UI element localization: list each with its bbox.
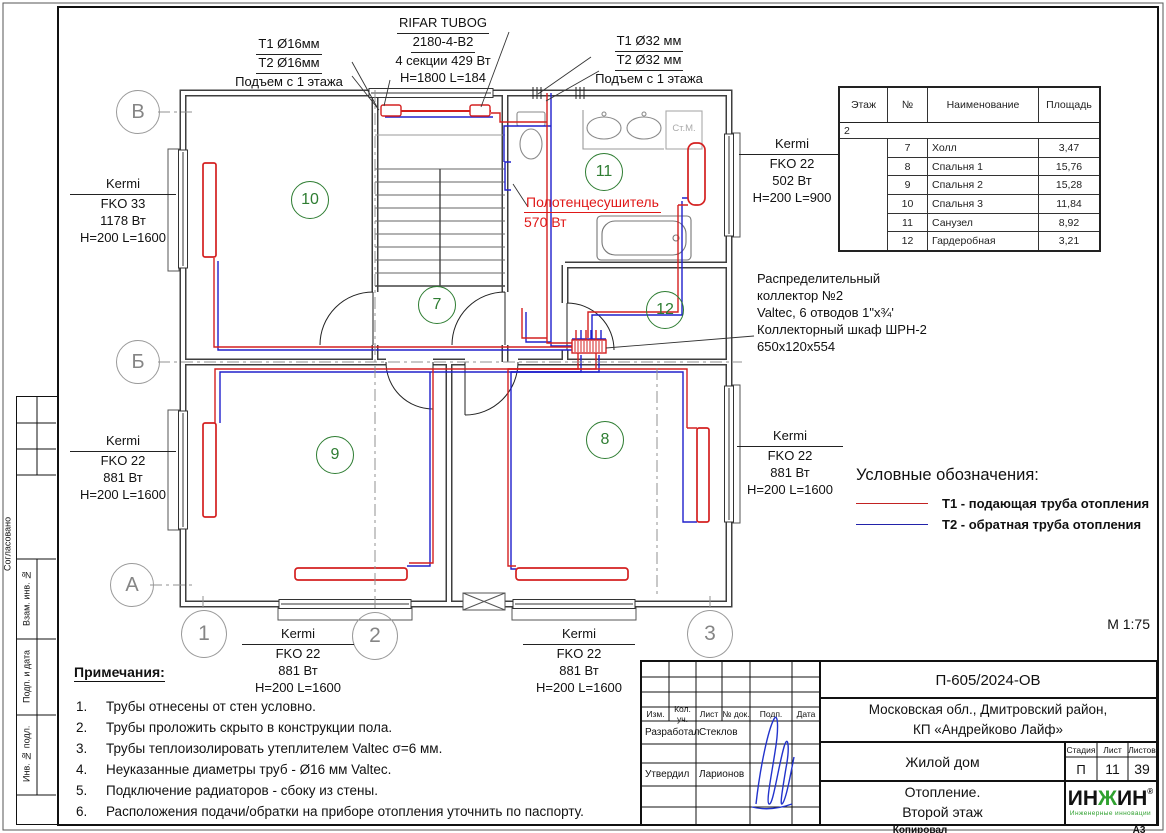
radiator-model: FKO 22 — [70, 453, 176, 470]
collector-line1: Распределительный — [757, 271, 952, 288]
table-row: 8Спальня 115,76 — [888, 158, 1099, 177]
stamp-podp: Подп. и дата — [17, 639, 36, 713]
axis-bubble-a: А — [110, 563, 154, 607]
note-item: 5.Подключение радиаторов - сбоку из стен… — [76, 780, 642, 801]
project-address: Московская обл., Дмитровский район, КП «… — [820, 698, 1156, 742]
radiator-power: 881 Вт — [737, 465, 843, 482]
staircase — [375, 135, 505, 286]
company-logo: ИНЖИН® Инженерные инновации — [1065, 781, 1156, 824]
axis-label: 2 — [369, 624, 381, 648]
radiator-brand: Kermi — [737, 428, 843, 447]
axis-label: 3 — [704, 622, 716, 646]
rifar-model: 2180-4-В2 — [411, 34, 476, 53]
legend-label: Т2 - обратная труба отопления — [942, 517, 1141, 532]
legend-line-blue — [856, 524, 928, 525]
collector — [572, 340, 606, 353]
radiator-power: 1178 Вт — [70, 213, 176, 230]
axis-bubble-b: Б — [116, 340, 160, 384]
rifar-size: H=1800 L=184 — [366, 70, 520, 87]
callout-radiator-room9-left: Kermi FKO 22 881 Вт H=200 L=1600 — [70, 433, 176, 504]
title-block: П-605/2024-ОВ Московская обл., Дмитровск… — [640, 660, 1158, 826]
stamp-inv: Инв. № подл. — [17, 715, 36, 793]
axis-bubble-2: 2 — [352, 612, 398, 660]
room-number-label: 8 — [601, 431, 610, 449]
axis-label: А — [125, 574, 138, 597]
drawing-title: Отопление. Второй этаж — [820, 781, 1065, 824]
riser16-t1: Т1 Ø16мм — [256, 36, 321, 55]
callout-radiator-room8-bottom: Kermi FKO 22 881 Вт H=200 L=1600 — [523, 626, 635, 697]
axis-bubble-1: 1 — [181, 610, 227, 658]
note-item: 1.Трубы отнесены от стен условно. — [76, 696, 642, 717]
approved-label: Утвердил — [642, 763, 696, 786]
riser16-t2: Т2 Ø16мм — [256, 55, 321, 74]
scale-label: М 1:75 — [1058, 616, 1150, 632]
logo-subtitle: Инженерные инновации — [1070, 810, 1151, 817]
col-kol: Кол. уч. — [669, 707, 696, 721]
legend-item-supply: Т1 - подающая труба отопления — [856, 496, 1149, 511]
copied-label: Копировал — [860, 825, 980, 833]
radiator-size: H=200 L=900 — [739, 190, 845, 207]
radiator-size: H=200 L=1600 — [242, 680, 354, 697]
legend-line-red — [856, 503, 928, 504]
room-number-12: 12 — [646, 291, 684, 329]
room-number-label: 11 — [596, 163, 613, 181]
floor-spacer-cell — [840, 139, 888, 250]
radiator-power: 881 Вт — [523, 663, 635, 680]
room-number-7: 7 — [418, 286, 456, 324]
room-number-label: 10 — [301, 191, 319, 209]
developed-label: Разработал — [642, 721, 696, 744]
collector-line4: Коллекторный шкаф ШРН-2 — [757, 322, 952, 339]
table-row: 10Спальня 311,84 — [888, 195, 1099, 214]
collector-line5: 650х120х554 — [757, 339, 952, 356]
callout-radiator-room9-bottom: Kermi FKO 22 881 Вт H=200 L=1600 — [242, 626, 354, 697]
chimney — [463, 593, 505, 610]
towel-rail-label: Полотенцесушитель — [524, 193, 661, 213]
callout-radiator-bathroom: Kermi FKO 22 502 Вт H=200 L=900 — [739, 136, 845, 207]
rifar-brand: RIFAR TUBOG — [397, 15, 489, 34]
legend-item-return: Т2 - обратная труба отопления — [856, 517, 1141, 532]
table-row: 12Гардеробная3,21 — [888, 232, 1099, 250]
table-header-row: Этаж № Наименование Площадь — [840, 88, 1099, 123]
rifar-sections: 4 секции 429 Вт — [366, 53, 520, 70]
drawing-sheet: В Б А 1 2 3 10 7 11 12 9 8 Ст.М. Т1 Ø16м… — [0, 0, 1166, 833]
radiator-model: FKO 22 — [523, 646, 635, 663]
callout-riser-32: Т1 Ø32 мм Т2 Ø32 мм Подъем с 1 этажа — [583, 33, 715, 88]
radiator-power: 502 Вт — [739, 173, 845, 190]
stamp-vzam: Взам. инв. № — [17, 559, 36, 637]
col-header-floor: Этаж — [840, 88, 888, 122]
callout-riser-16: Т1 Ø16мм Т2 Ø16мм Подъем с 1 этажа — [215, 36, 363, 91]
riser32-t2: Т2 Ø32 мм — [615, 52, 684, 71]
radiator-brand: Kermi — [70, 433, 176, 452]
table-row: 7Холл3,47 — [888, 139, 1099, 158]
col-izm: Изм. — [642, 707, 669, 721]
stamp-soglasovano: Согласовано — [1, 498, 14, 590]
radiator-model: FKO 22 — [737, 448, 843, 465]
radiator-size: H=200 L=1600 — [70, 487, 176, 504]
note-item: 4.Неуказанные диаметры труб - Ø16 мм Val… — [76, 759, 642, 780]
sheets-value: 39 — [1128, 757, 1156, 781]
table-row: 9Спальня 215,28 — [888, 176, 1099, 195]
notes-title: Примечания: — [74, 664, 165, 682]
riser16-note: Подъем с 1 этажа — [215, 74, 363, 91]
axis-bubble-v: В — [116, 90, 160, 134]
room-number-8: 8 — [586, 421, 624, 459]
doc-number: П-605/2024-ОВ — [820, 662, 1156, 698]
callout-rifar: RIFAR TUBOG 2180-4-В2 4 секции 429 Вт H=… — [366, 15, 520, 87]
object-name: Жилой дом — [820, 742, 1065, 781]
room-number-11: 11 — [585, 153, 623, 191]
radiator-rifar-stairs — [381, 105, 491, 116]
radiators — [203, 105, 709, 580]
axis-label: Б — [131, 351, 144, 374]
radiator-room8-bottom — [516, 568, 628, 580]
room-number-label: 12 — [656, 301, 674, 319]
sinks — [587, 112, 661, 139]
axis-label: В — [131, 101, 144, 124]
legend-label: Т1 - подающая труба отопления — [942, 496, 1149, 511]
axis-label: 1 — [198, 622, 210, 646]
stage-value: П — [1065, 757, 1097, 781]
callout-radiator-room8-right: Kermi FKO 22 881 Вт H=200 L=1600 — [737, 428, 843, 499]
radiator-model: FKO 22 — [242, 646, 354, 663]
room-number-label: 9 — [331, 446, 340, 464]
collector-line3: Valtec, 6 отводов 1"х¾' — [757, 305, 952, 322]
notes-list: 1.Трубы отнесены от стен условно. 2.Труб… — [76, 696, 642, 822]
format-label: А3 — [1126, 825, 1152, 833]
table-row: 11Санузел8,92 — [888, 214, 1099, 233]
col-header-num: № — [888, 88, 928, 122]
radiator-room9-bottom — [295, 568, 407, 580]
stage-header: Стадия — [1065, 742, 1097, 757]
note-item: 2.Трубы проложить скрыто в конструкции п… — [76, 717, 642, 738]
radiator-brand: Kermi — [739, 136, 845, 155]
radiator-room8-right — [697, 428, 709, 522]
radiator-size: H=200 L=1600 — [523, 680, 635, 697]
callout-collector: Распределительный коллектор №2 Valtec, 6… — [757, 271, 952, 355]
axis-bubble-3: 3 — [687, 610, 733, 658]
radiator-room9-left — [203, 423, 216, 517]
riser32-note: Подъем с 1 этажа — [583, 71, 715, 88]
callout-towel-rail: Полотенцесушитель 570 Вт — [524, 193, 694, 231]
towel-rail-power: 570 Вт — [524, 213, 694, 231]
callout-radiator-room10: Kermi FKO 33 1178 Вт H=200 L=1600 — [70, 176, 176, 247]
radiator-model: FKO 22 — [739, 156, 845, 173]
pipes-return-t2 — [218, 93, 697, 569]
windows — [179, 89, 734, 609]
radiator-power: 881 Вт — [242, 663, 354, 680]
room-number-label: 7 — [433, 296, 442, 314]
riser32-t1: Т1 Ø32 мм — [615, 33, 684, 52]
radiator-size: H=200 L=1600 — [70, 230, 176, 247]
radiator-size: H=200 L=1600 — [737, 482, 843, 499]
sheet-value: 11 — [1097, 757, 1128, 781]
radiator-brand: Kermi — [242, 626, 354, 645]
radiator-brand: Kermi — [70, 176, 176, 195]
collector-line2: коллектор №2 — [757, 288, 952, 305]
room-area-table: Этаж № Наименование Площадь 2 7Холл3,47 … — [838, 86, 1101, 252]
doors — [320, 292, 614, 415]
sheets-header: Листов — [1128, 742, 1156, 757]
room-number-9: 9 — [316, 436, 354, 474]
signature — [742, 704, 802, 822]
col-header-name: Наименование — [928, 88, 1039, 122]
col-header-area: Площадь — [1039, 88, 1099, 122]
radiator-brand: Kermi — [523, 626, 635, 645]
logo-text: ИНЖИН® — [1068, 788, 1153, 809]
legend-title: Условные обозначения: — [856, 466, 1039, 485]
toilet — [517, 112, 545, 159]
pipes-supply-t1 — [214, 93, 697, 566]
note-item: 6.Расположения подачи/обратки на приборе… — [76, 801, 642, 822]
table-floor-row: 2 — [840, 123, 1099, 139]
washing-machine-label: Ст.М. — [666, 123, 702, 134]
note-item: 3.Трубы теплоизолировать утеплителем Val… — [76, 738, 642, 759]
room-number-10: 10 — [291, 181, 329, 219]
radiator-model: FKO 33 — [70, 196, 176, 213]
radiator-room10 — [203, 163, 216, 257]
col-list: Лист — [696, 707, 722, 721]
radiator-power: 881 Вт — [70, 470, 176, 487]
sheet-header: Лист — [1097, 742, 1128, 757]
walls — [183, 93, 729, 604]
